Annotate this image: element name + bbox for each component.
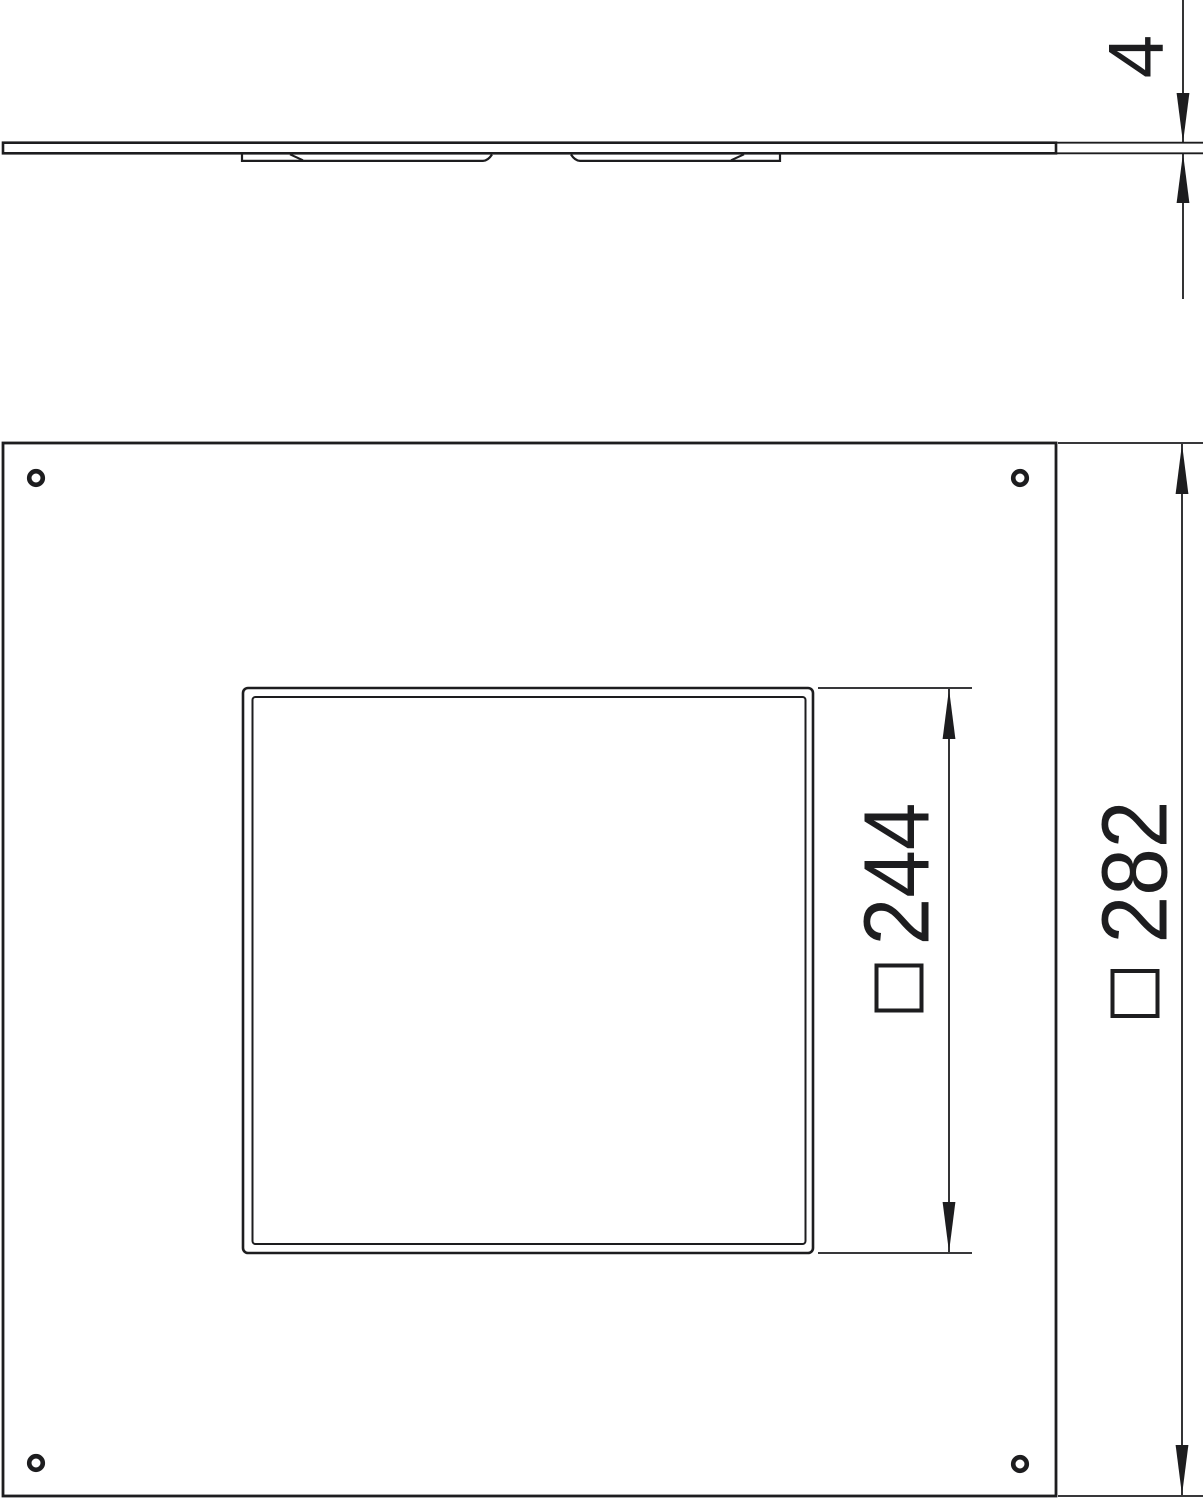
cutout-outer-outline <box>243 688 813 1253</box>
plate-profile-outline <box>3 143 1056 154</box>
recess-chamfer-left <box>290 154 303 160</box>
side-profile-view: 4 <box>3 0 1203 299</box>
plate-dimension-label: 282 <box>1082 801 1186 944</box>
drawing-canvas: 4 244 282 <box>0 0 1204 1500</box>
thickness-extension-lines <box>1056 143 1203 154</box>
thickness-dimension-label: 4 <box>1092 35 1180 78</box>
arrowhead-up-icon <box>1177 153 1190 203</box>
cutout-dimension-label: 244 <box>844 803 948 946</box>
arrowhead-down-icon <box>1177 93 1190 143</box>
square-outline-symbol <box>1113 971 1158 1016</box>
arrowhead-up-icon <box>1176 444 1189 494</box>
recess-chamfer-right <box>731 154 744 160</box>
arrowhead-down-icon <box>1176 1445 1189 1495</box>
plan-top-view: 244 282 <box>3 443 1203 1496</box>
